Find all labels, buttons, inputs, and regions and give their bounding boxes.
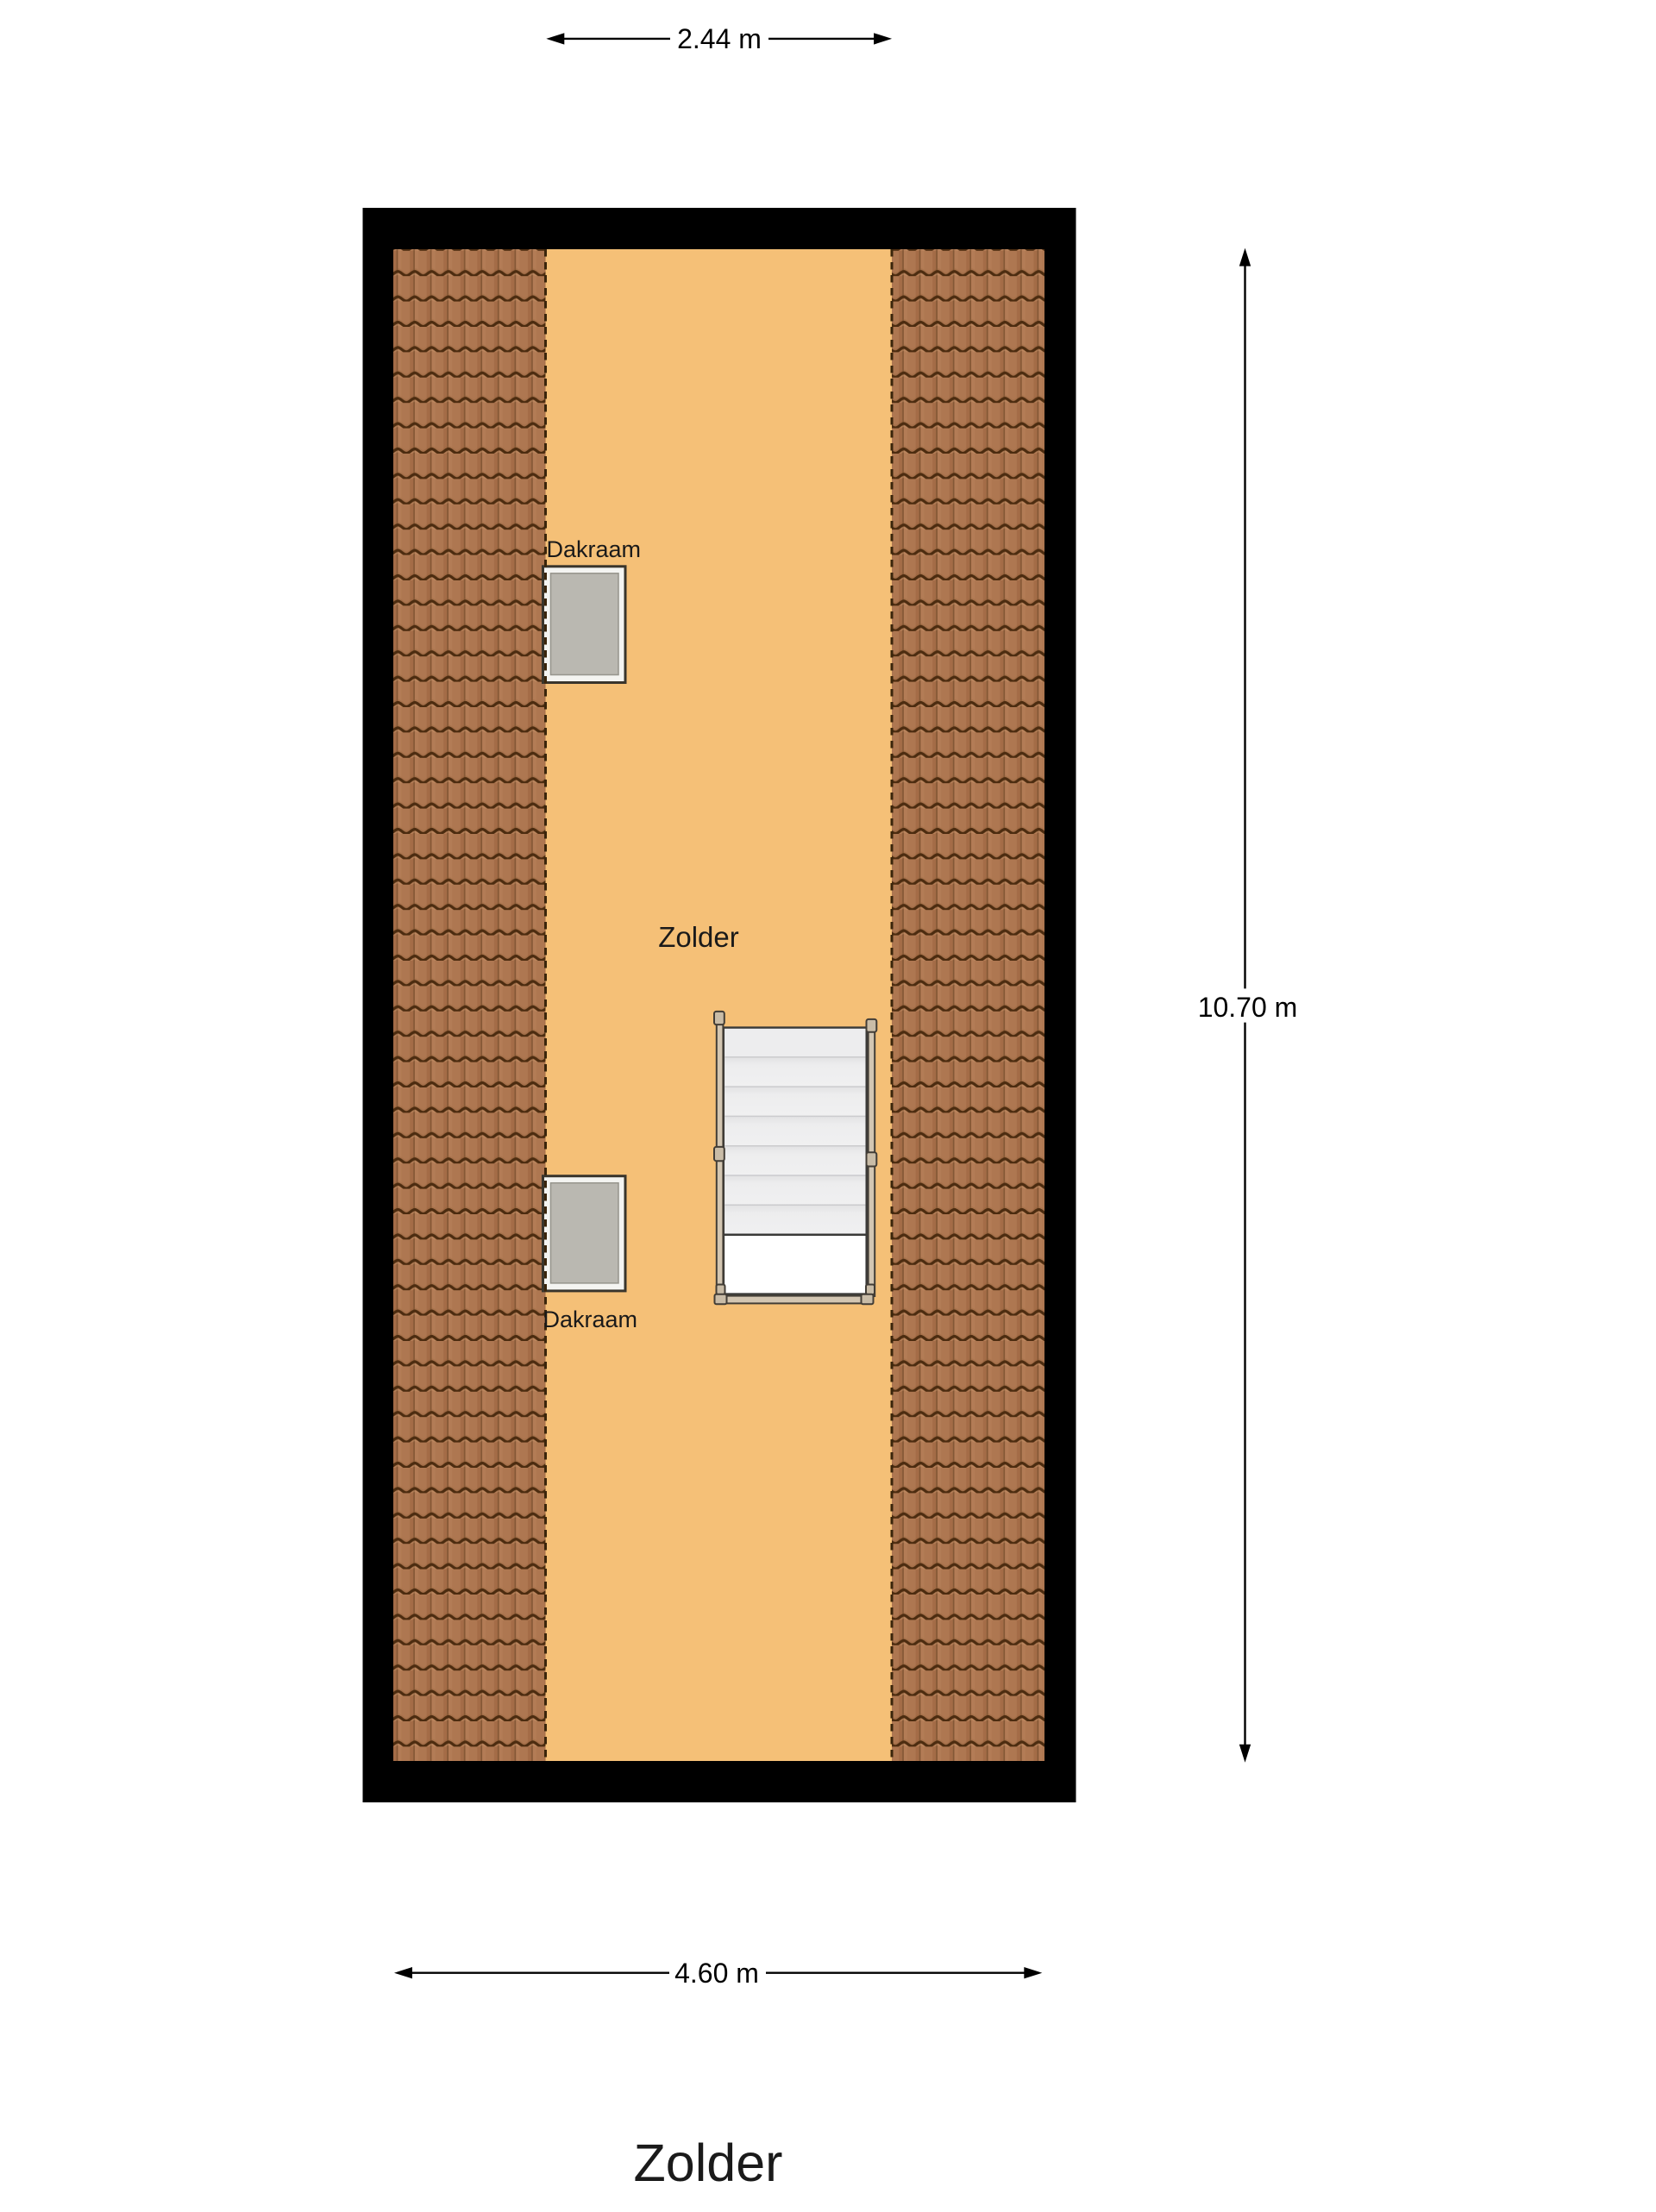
svg-text:Dakraam: Dakraam — [543, 1307, 638, 1332]
svg-text:2.44 m: 2.44 m — [677, 23, 762, 54]
svg-text:Zolder: Zolder — [658, 921, 739, 953]
svg-text:Dakraam: Dakraam — [547, 536, 642, 562]
svg-text:4.60 m: 4.60 m — [674, 1958, 759, 1989]
svg-text:10.70 m: 10.70 m — [1198, 992, 1298, 1023]
svg-text:Zolder: Zolder — [634, 2134, 783, 2192]
